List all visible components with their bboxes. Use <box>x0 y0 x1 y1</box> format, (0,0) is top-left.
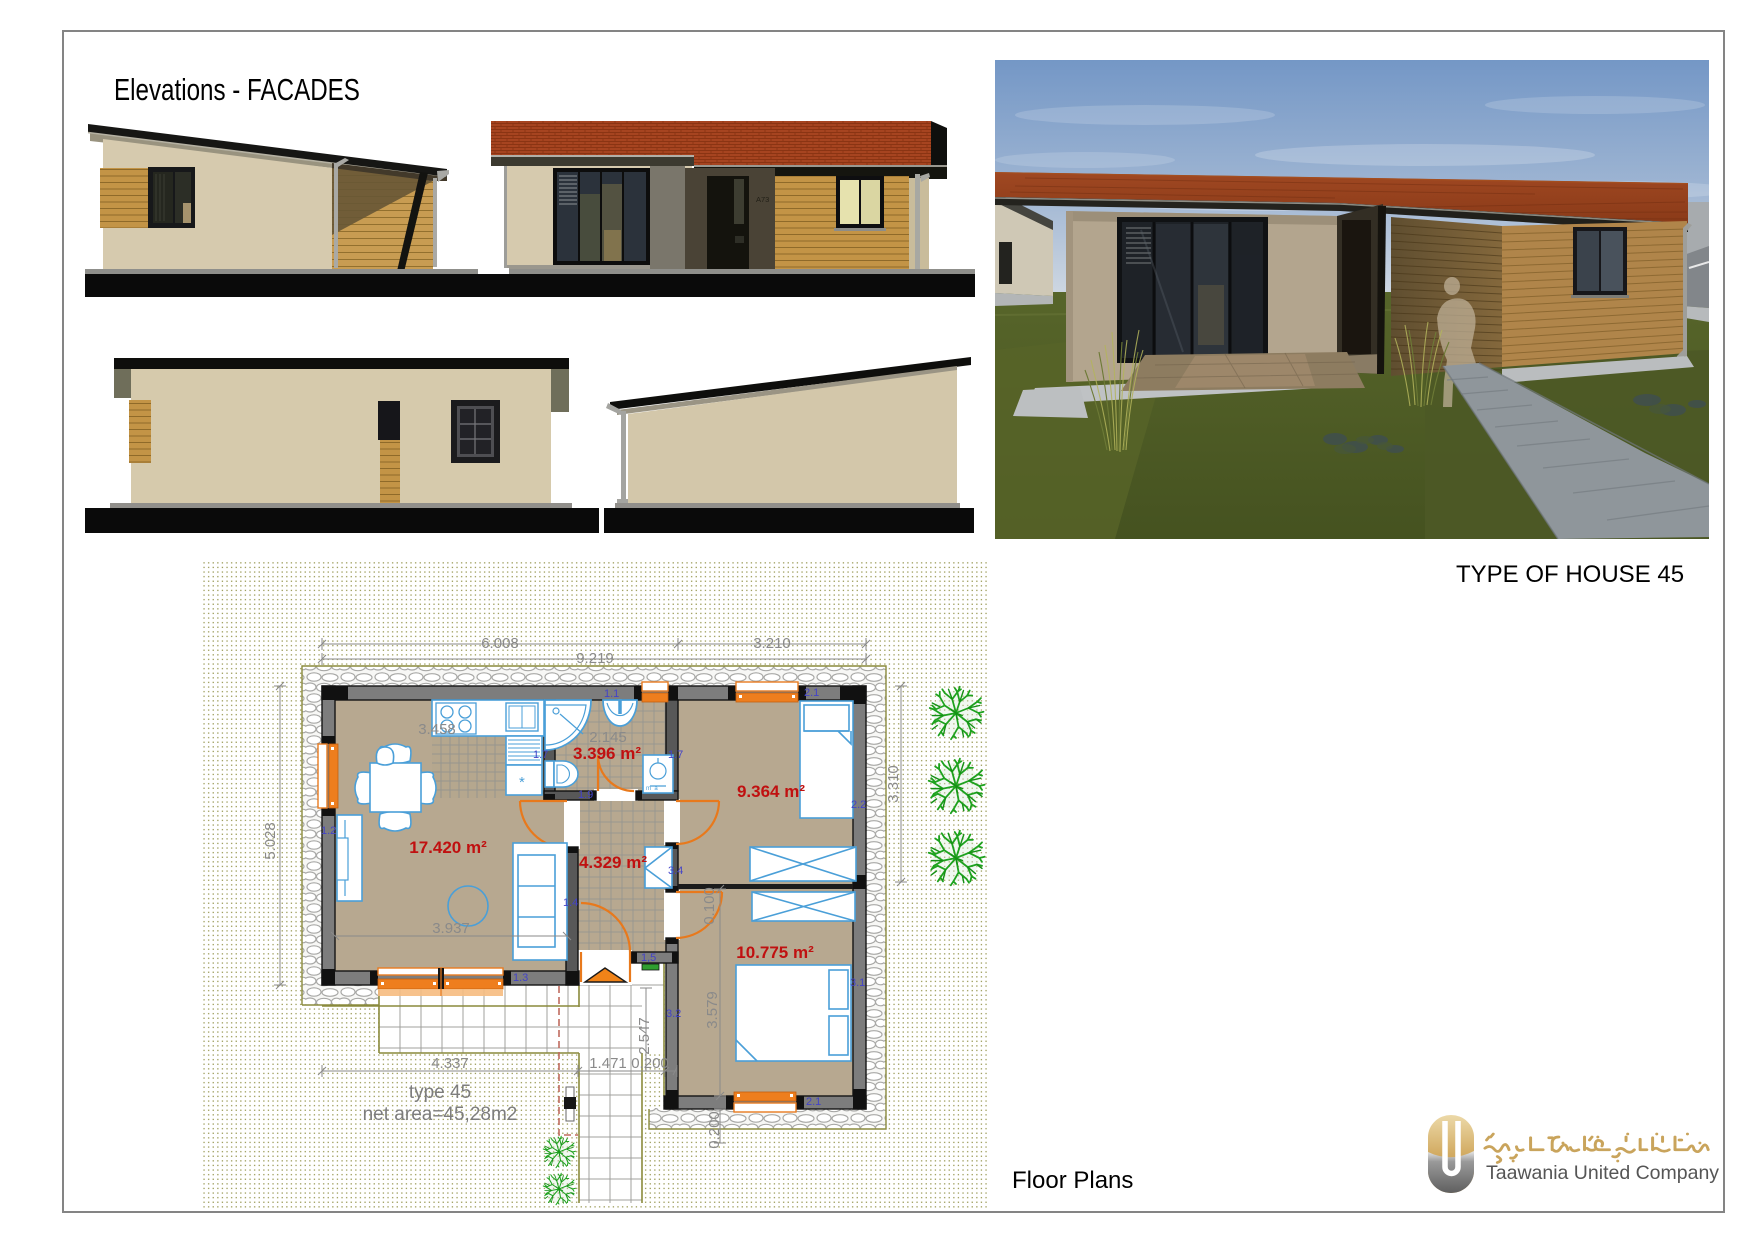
svg-text:1.9: 1.9 <box>578 789 593 801</box>
svg-text:1,5: 1,5 <box>641 952 656 964</box>
svg-text:5.028: 5.028 <box>262 822 279 860</box>
svg-text:17.420 m²: 17.420 m² <box>409 838 487 857</box>
svg-text:2.1: 2.1 <box>806 1096 821 1108</box>
svg-text:3.579: 3.579 <box>704 991 721 1029</box>
svg-text:m a: m a <box>646 786 658 792</box>
svg-text:0.100: 0.100 <box>701 887 718 925</box>
svg-text:9.364 m²: 9.364 m² <box>737 782 805 801</box>
svg-text:type 45: type 45 <box>409 1082 471 1103</box>
svg-text:10.775 m²: 10.775 m² <box>736 943 814 962</box>
svg-text:0.200: 0.200 <box>706 1111 723 1149</box>
svg-text:0.200: 0.200 <box>631 1055 669 1072</box>
svg-text:1.4: 1.4 <box>563 897 578 909</box>
svg-text:*: * <box>519 774 525 791</box>
svg-text:3.2: 3.2 <box>666 1008 681 1020</box>
svg-text:A73: A73 <box>756 195 769 204</box>
svg-text:1.7: 1.7 <box>668 749 683 761</box>
svg-text:4.337: 4.337 <box>431 1055 469 1072</box>
svg-text:1.1: 1.1 <box>604 688 619 700</box>
svg-text:3.4: 3.4 <box>668 865 683 877</box>
svg-text:6.008: 6.008 <box>481 635 519 652</box>
svg-text:1.7: 1.7 <box>533 749 548 761</box>
svg-text:9.219: 9.219 <box>576 650 614 667</box>
svg-text:3.210: 3.210 <box>753 635 791 652</box>
svg-text:4.329 m²: 4.329 m² <box>579 853 647 872</box>
svg-text:1.3: 1.3 <box>513 972 528 984</box>
svg-text:1.471: 1.471 <box>589 1055 627 1072</box>
svg-text:Taawania United Company: Taawania United Company <box>1486 1162 1719 1184</box>
svg-text:net area=45,28m2: net area=45,28m2 <box>363 1104 518 1125</box>
svg-text:3.937: 3.937 <box>432 920 470 937</box>
svg-text:3.310: 3.310 <box>885 765 902 803</box>
svg-text:3.458: 3.458 <box>418 721 456 738</box>
svg-text:2.2: 2.2 <box>851 799 866 811</box>
svg-text:3.1: 3.1 <box>850 977 865 989</box>
svg-text:3.396 m²: 3.396 m² <box>573 744 641 763</box>
svg-text:1.2: 1.2 <box>321 825 336 837</box>
svg-text:2.1: 2.1 <box>804 687 819 699</box>
svg-text:2.547: 2.547 <box>636 1017 653 1055</box>
